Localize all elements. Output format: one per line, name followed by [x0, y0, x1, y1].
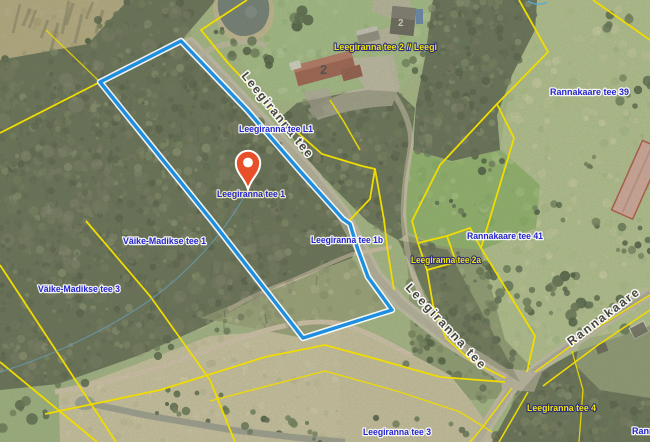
- svg-text:Leegiranna tee 3: Leegiranna tee 3: [363, 427, 431, 437]
- svg-text:Leegiranna tee 2a: Leegiranna tee 2a: [411, 255, 482, 265]
- svg-text:Väike-Madikse tee 1: Väike-Madikse tee 1: [123, 236, 206, 246]
- svg-text:Leegiranna tee 4: Leegiranna tee 4: [527, 403, 596, 413]
- svg-text:Leegiranna tee L1: Leegiranna tee L1: [239, 124, 313, 134]
- svg-text:Leegiranna tee 1: Leegiranna tee 1: [217, 189, 285, 199]
- svg-text:Leegiranna tee 2 // Leegi: Leegiranna tee 2 // Leegi: [334, 42, 437, 53]
- svg-text:Rannakaare tee 41: Rannakaare tee 41: [467, 231, 543, 241]
- svg-text:Väike-Madikse tee 3: Väike-Madikse tee 3: [38, 284, 120, 294]
- svg-text:Rannakaare tee 39: Rannakaare tee 39: [550, 87, 629, 97]
- svg-text:Leegiranna tee 1b: Leegiranna tee 1b: [311, 235, 383, 245]
- svg-text:Rannak: Rannak: [632, 426, 650, 436]
